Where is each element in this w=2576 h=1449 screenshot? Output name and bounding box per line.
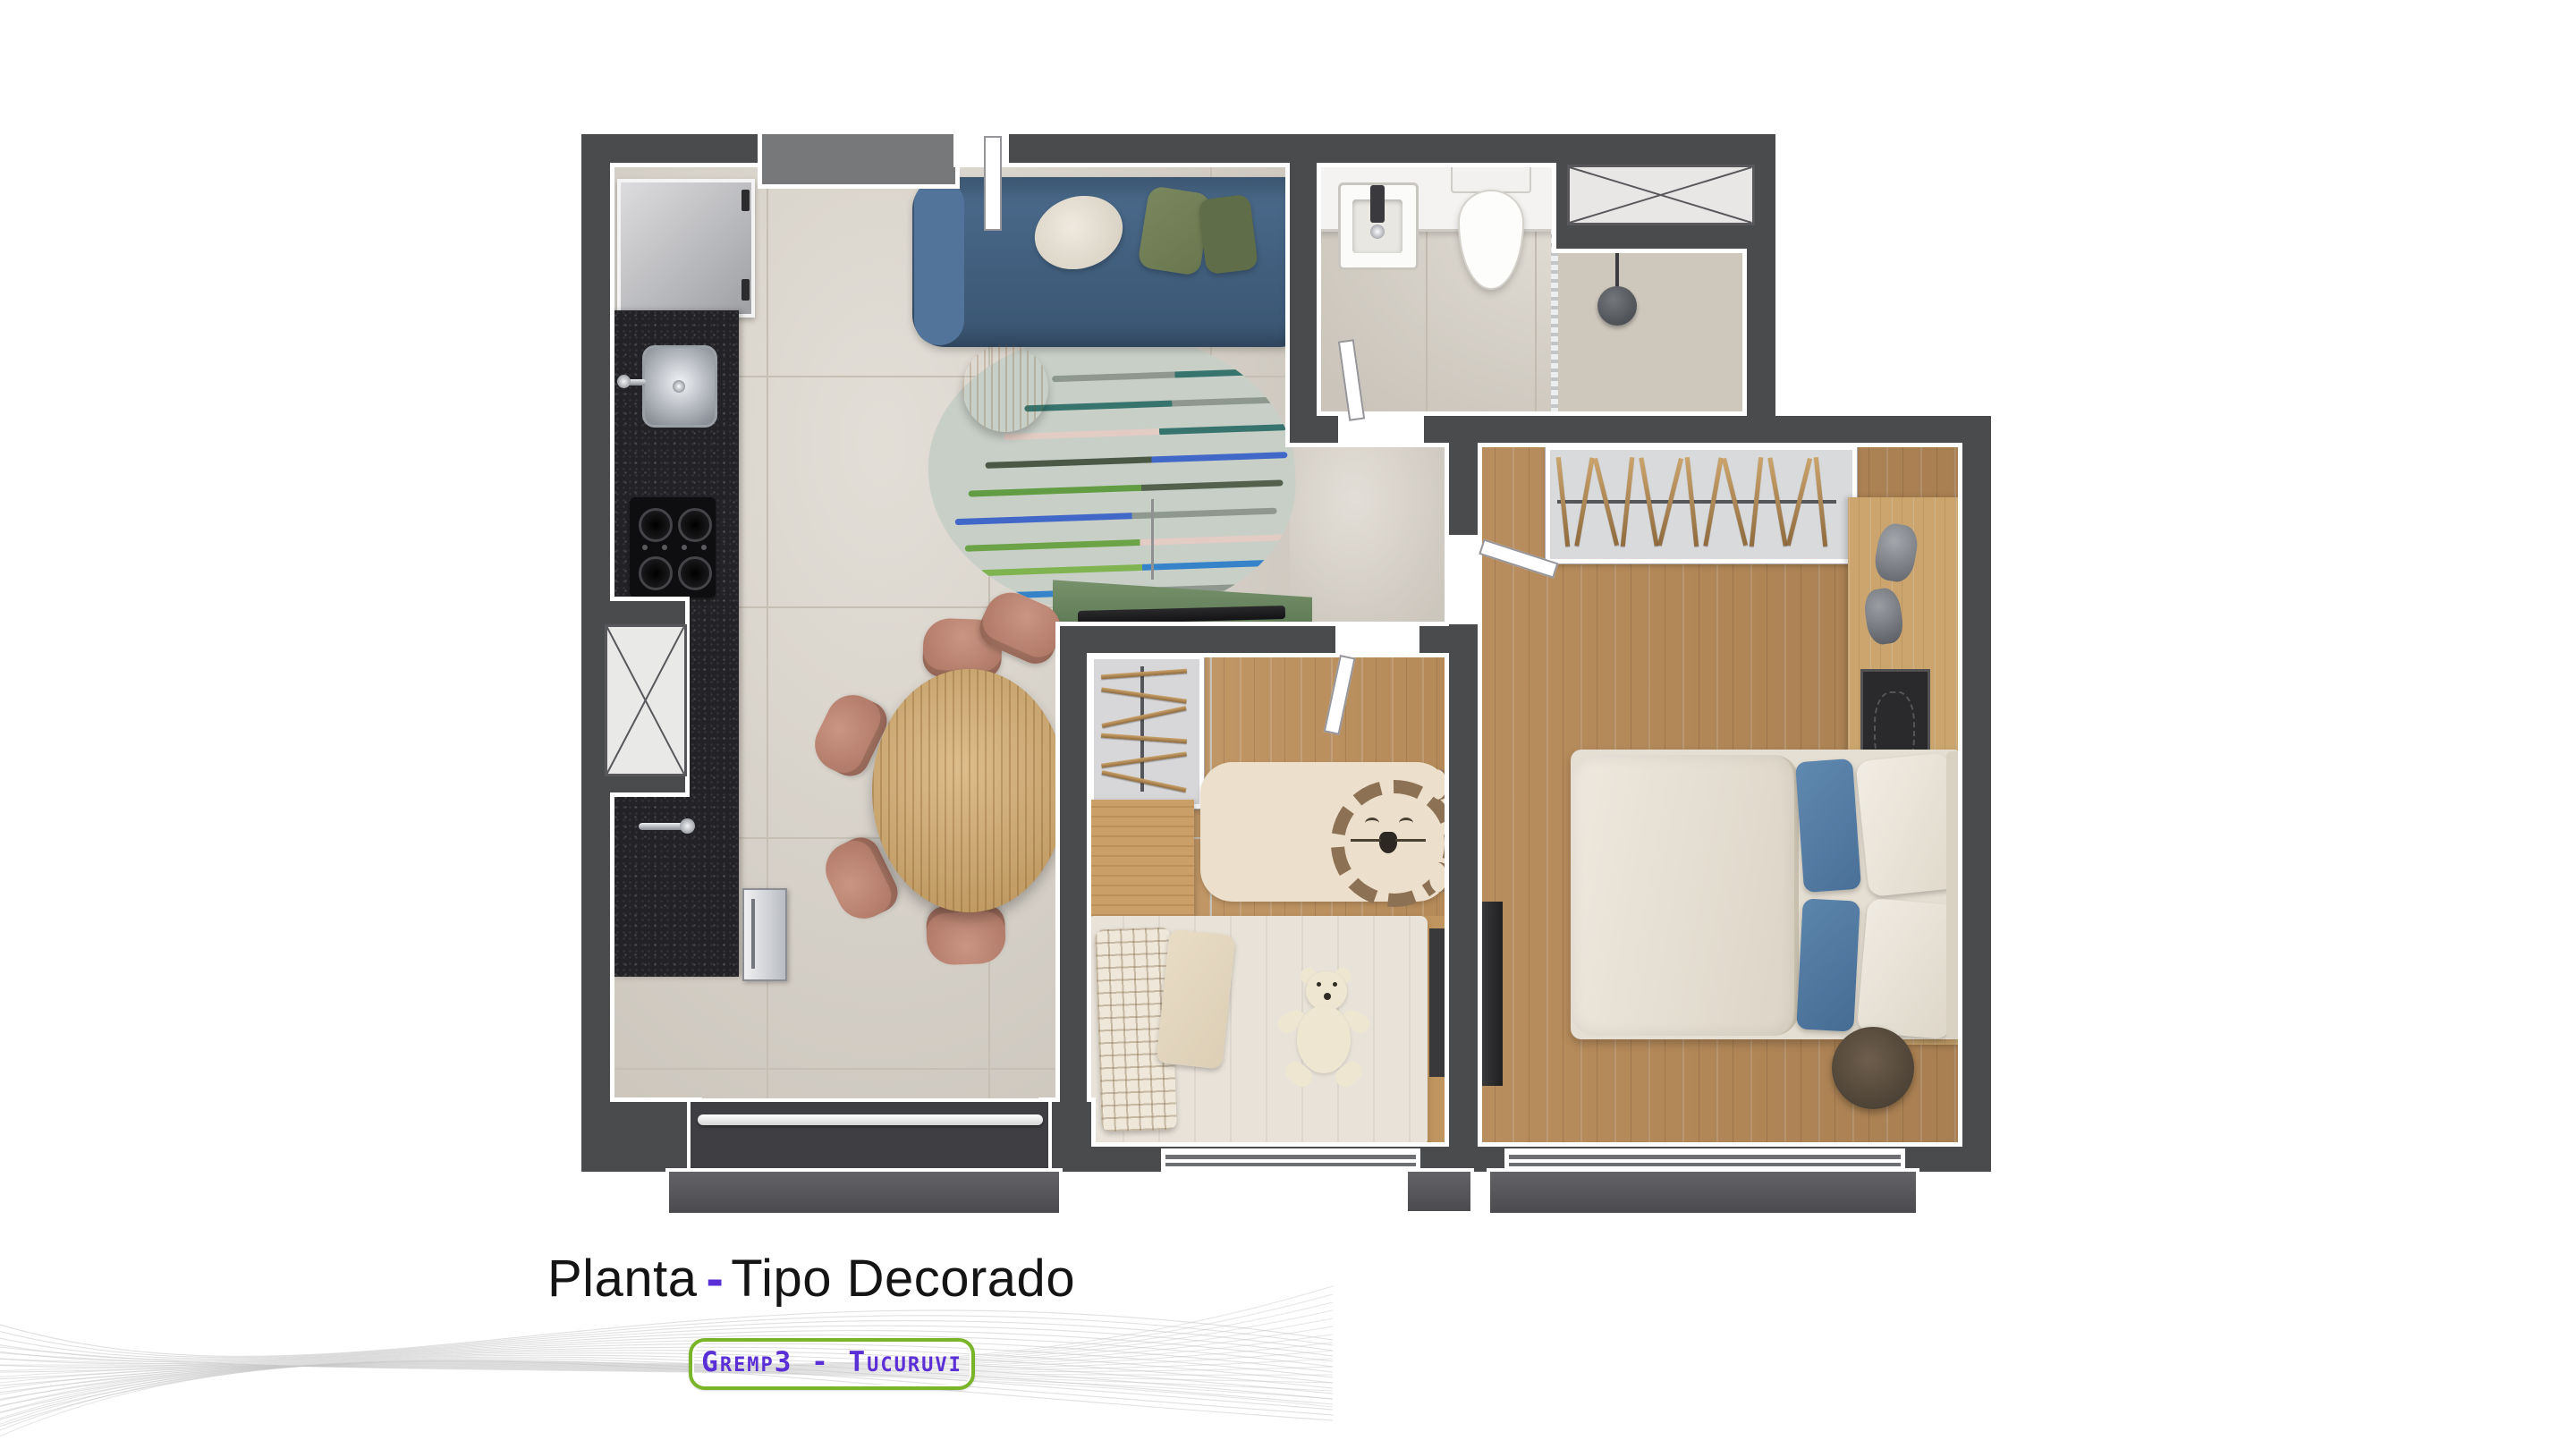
fridge-handle [741, 279, 750, 301]
floor-lamp [1151, 499, 1154, 580]
balcony-slab [1408, 1172, 1470, 1211]
stove-knob [682, 545, 687, 550]
burner [678, 508, 712, 542]
shower-floor [1558, 229, 1747, 416]
duct-shaft [1567, 165, 1755, 225]
washer-detail [751, 899, 755, 969]
stove-knob [662, 545, 667, 550]
clothes-hanger [1101, 687, 1187, 703]
teddy-eye [1317, 982, 1321, 987]
wardrobe-rod [1140, 666, 1144, 792]
entry-niche [762, 134, 955, 184]
title-dash: - [706, 1250, 724, 1308]
kids-wardrobe [1089, 655, 1204, 809]
page-title: Planta-Tipo Decorado [547, 1249, 1075, 1309]
rug-stripe [955, 508, 1277, 526]
bedroom-media-panel [1481, 902, 1503, 1086]
lion-eye [1365, 818, 1379, 829]
pillow-white [1857, 898, 1962, 1039]
clothes-hanger [1101, 733, 1187, 744]
kids-window [1161, 1148, 1420, 1172]
floor-plan-page: Planta-Tipo Decorado Gremp3 - Tucuruvi [0, 0, 2576, 1449]
lion-whisker [1351, 839, 1381, 842]
living-window [691, 1102, 1048, 1172]
title-part2: Tipo Decorado [731, 1250, 1075, 1308]
bedroom-door-opening [1445, 535, 1482, 624]
duct-shaft [605, 624, 687, 776]
fridge [617, 179, 755, 318]
dining-table [872, 669, 1066, 912]
sofa-armrest [914, 179, 964, 345]
wall-kids-left [1060, 626, 1087, 1172]
wave-line [0, 1316, 1333, 1358]
balcony-slab [1490, 1172, 1916, 1213]
kitchen-sink [642, 345, 717, 428]
bath-drain [1370, 225, 1385, 239]
shower-glass-partition [1551, 229, 1558, 416]
hallway-floor [1290, 443, 1449, 628]
washing-machine [742, 888, 787, 981]
toilet-tank [1451, 163, 1531, 193]
clothes-hanger [1102, 706, 1187, 728]
wardrobe-rod [1557, 500, 1836, 504]
wave-line [0, 1326, 1333, 1360]
window-glass [1165, 1155, 1416, 1159]
window-glass [1509, 1155, 1901, 1159]
teddy-nose [1324, 993, 1331, 1000]
wall-bottom-left [581, 1102, 698, 1172]
round-pouf [1832, 1027, 1914, 1109]
stove-knob [642, 545, 648, 550]
rug-stripe [969, 479, 1284, 496]
rug-stripe [980, 560, 1275, 577]
entry-door-leaf [984, 136, 1002, 231]
lion-whisker [1395, 839, 1426, 842]
shower-head [1597, 286, 1637, 326]
clothes-hanger [1101, 669, 1187, 680]
kids-door-opening [1335, 622, 1419, 657]
wall-bedroom-right [1962, 416, 1991, 1172]
window-glass [1509, 1163, 1901, 1166]
bathroom-sink [1338, 182, 1419, 270]
title-part1: Planta [547, 1250, 697, 1308]
clothes-hanger [1101, 751, 1187, 767]
cream-pillow [1156, 929, 1235, 1070]
fridge-handle [741, 190, 750, 211]
clothes-hanger [1102, 770, 1187, 792]
sink-drain [673, 380, 685, 393]
teddy-body [1297, 1005, 1351, 1073]
bath-faucet [1370, 185, 1385, 223]
bedroom-window [1504, 1148, 1905, 1172]
rug-stripe [1024, 396, 1292, 411]
burner [639, 556, 673, 590]
lion-eye [1399, 818, 1413, 829]
rug-stripe [985, 452, 1287, 469]
wall-bathroom-left [1290, 134, 1317, 443]
laundry-faucet-knob [680, 818, 695, 834]
lion-nose [1379, 832, 1397, 853]
cooktop [630, 497, 716, 597]
burner [678, 556, 712, 590]
sofa [912, 177, 1297, 347]
dining-chair [926, 903, 1006, 965]
pillow-blue [1796, 898, 1860, 1031]
living-window-sill [698, 1114, 1043, 1125]
rug-stripe [965, 534, 1284, 551]
balcony-slab [669, 1172, 1059, 1213]
round-side-table [962, 344, 1048, 432]
pillow-blue [1795, 758, 1861, 893]
project-badge: Gremp3 - Tucuruvi [689, 1338, 975, 1390]
bed-duvet [1571, 755, 1799, 1036]
window-glass [1165, 1163, 1416, 1166]
kids-desk [1087, 800, 1194, 916]
green-pillow [1137, 185, 1212, 276]
lion-rug [1200, 762, 1449, 902]
bedroom-wardrobe [1546, 445, 1857, 563]
teddy-bear [1277, 971, 1370, 1102]
stove-knob [701, 545, 707, 550]
sink-faucet-knob [617, 375, 631, 388]
green-pillow [1198, 194, 1258, 275]
burner [639, 508, 673, 542]
rug-stripe [1004, 424, 1286, 440]
rug-stripe [1052, 369, 1275, 383]
teddy-eye [1333, 982, 1337, 987]
